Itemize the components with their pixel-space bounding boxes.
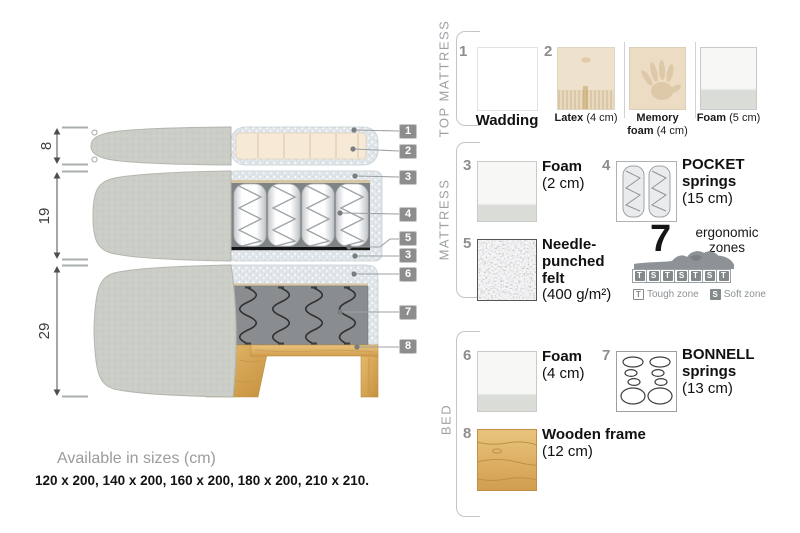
latex-image (557, 47, 615, 110)
legend-num-latex: 2 (544, 43, 552, 60)
zone-letter: T (635, 271, 645, 281)
bonnell-springs-image (616, 351, 677, 412)
dimension-label-bed: 29 (36, 316, 52, 346)
layer-tag-4: 4 (399, 207, 417, 222)
tough-zone-text: Tough zone (647, 289, 699, 300)
section-label-mattress: MATTRESS (437, 164, 452, 276)
zone-box: S (702, 269, 717, 283)
latex-size: (4 cm) (586, 112, 617, 124)
top-mattress-section (91, 127, 378, 165)
wooden-frame-label: Wooden frame (12 cm) (542, 427, 662, 461)
tough-zone-chip: T (633, 289, 644, 300)
dimension-label-top-mattress: 8 (38, 131, 54, 161)
availability-title: Available in sizes (cm) (57, 450, 216, 468)
foam2-size: (2 cm) (542, 176, 612, 193)
zone-letter: S (705, 271, 715, 281)
foam4-size: (4 cm) (542, 366, 612, 383)
bonnell-springs-label: BONNELL springs (13 cm) (682, 347, 762, 397)
foam5-name: Foam (697, 112, 726, 124)
zone-letter: T (719, 271, 729, 281)
legend-num-wadding: 1 (459, 43, 467, 60)
layer-tag-3b: 3 (399, 248, 417, 263)
mattress-section (93, 171, 382, 261)
legend-num-felt: 5 (463, 235, 471, 252)
felt-size: (400 g/m²) (542, 287, 614, 304)
wadding-label: Wadding (467, 112, 547, 129)
zone-box: S (674, 269, 689, 283)
foam5-image (700, 47, 757, 110)
bonnell-springs-name: BONNELL springs (682, 346, 754, 380)
foam2-image (477, 161, 537, 222)
wooden-frame-name: Wooden frame (542, 426, 646, 443)
felt-name: Needle-punched felt (542, 236, 605, 287)
zone-letter: T (691, 271, 701, 281)
foam5-size: (5 cm) (729, 112, 760, 124)
memory-foam-size: (4 cm) (657, 125, 688, 137)
wooden-frame-size: (12 cm) (542, 444, 662, 461)
foam4-image (477, 351, 537, 412)
legend-num-foam4: 6 (463, 347, 471, 364)
zone-box: S (646, 269, 661, 283)
ergonomic-zones-bar: T S T S T S T (632, 269, 730, 283)
legend-num-foam2: 3 (463, 157, 471, 174)
wooden-frame-image (477, 429, 537, 491)
zone-box: T (716, 269, 731, 283)
dimension-label-mattress: 19 (36, 201, 52, 231)
wadding-image (477, 47, 538, 111)
soft-zone-text: Soft zone (724, 289, 766, 300)
pocket-springs-label: POCKET springs (15 cm) (682, 157, 760, 207)
zone-box: T (660, 269, 675, 283)
latex-name: Latex (555, 112, 584, 124)
layer-tag-5: 5 (399, 231, 417, 246)
soft-zone-chip: S (710, 289, 721, 300)
felt-label: Needle-punched felt (400 g/m²) (542, 237, 614, 304)
zone-letter: S (677, 271, 687, 281)
soft-zone-key: S Soft zone (710, 289, 766, 300)
pocket-springs-name: POCKET springs (682, 156, 745, 190)
dimension-lines (54, 128, 88, 397)
lying-person-icon (630, 247, 738, 270)
section-label-top-mattress: TOP MATTRESS (437, 15, 452, 143)
layer-tag-6: 6 (399, 267, 417, 282)
legend-divider-1 (624, 42, 625, 118)
memory-foam-image (629, 47, 686, 110)
zone-key-legend: T Tough zone S Soft zone (633, 289, 766, 300)
felt-image (477, 239, 537, 301)
pocket-springs-image (616, 161, 677, 222)
legend-num-bonnell: 7 (602, 347, 610, 364)
zone-box: T (632, 269, 647, 283)
layer-tag-3: 3 (399, 170, 417, 185)
zone-letter: S (649, 271, 659, 281)
section-label-bed: BED (439, 384, 454, 456)
foam2-name: Foam (542, 158, 582, 175)
legend-num-wood: 8 (463, 425, 471, 442)
zone-box: T (688, 269, 703, 283)
layer-tag-2: 2 (399, 144, 417, 159)
memory-foam-label: Memory foam (4 cm) (622, 112, 693, 137)
layer-tag-8: 8 (399, 339, 417, 354)
legend-divider-2 (695, 42, 696, 118)
layer-tag-1: 1 (399, 124, 417, 139)
bed-base-section (94, 265, 378, 397)
latex-label: Latex (4 cm) (551, 112, 621, 125)
available-sizes: 120 x 200, 140 x 200, 160 x 200, 180 x 2… (35, 473, 369, 488)
tough-zone-key: T Tough zone (633, 289, 699, 300)
legend-num-pocket: 4 (602, 157, 610, 174)
foam4-name: Foam (542, 348, 582, 365)
bed-construction-infographic: 8 19 29 1 2 3 4 5 3 6 7 8 TOP MATTRESS M… (0, 0, 800, 533)
zone-letter: T (663, 271, 673, 281)
bonnell-springs-size: (13 cm) (682, 381, 762, 398)
layer-tag-7: 7 (399, 305, 417, 320)
foam5-label: Foam (5 cm) (694, 112, 763, 125)
pocket-springs-size: (15 cm) (682, 191, 760, 208)
